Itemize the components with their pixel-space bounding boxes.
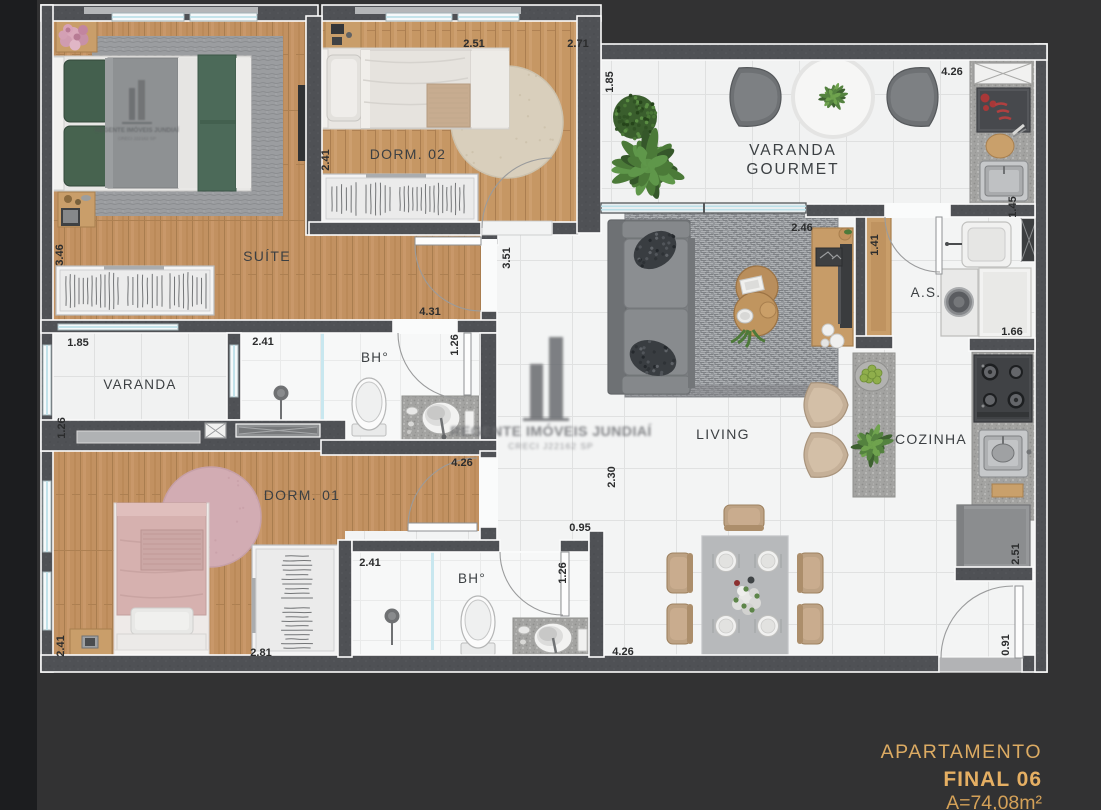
svg-text:0.91: 0.91 [1000, 634, 1012, 655]
svg-text:VARANDA: VARANDA [749, 142, 837, 159]
svg-text:1.45: 1.45 [1007, 196, 1019, 217]
svg-text:0.95: 0.95 [569, 522, 590, 534]
svg-text:CRECI J22162 SP: CRECI J22162 SP [118, 136, 156, 141]
svg-text:GOURMET: GOURMET [746, 161, 839, 178]
svg-text:1.26: 1.26 [449, 334, 461, 355]
svg-text:SUÍTE: SUÍTE [243, 248, 291, 264]
svg-text:2.41: 2.41 [359, 557, 380, 569]
svg-text:A.S.: A.S. [911, 285, 942, 300]
svg-text:2.51: 2.51 [463, 38, 484, 50]
svg-text:1.26: 1.26 [557, 562, 569, 583]
svg-text:4.26: 4.26 [612, 646, 633, 658]
svg-text:1.66: 1.66 [1001, 326, 1022, 338]
svg-text:BH°: BH° [361, 350, 389, 365]
svg-text:REGENTE IMÓVEIS JUNDIAÍ: REGENTE IMÓVEIS JUNDIAÍ [95, 126, 179, 134]
svg-text:APARTAMENTO: APARTAMENTO [881, 741, 1042, 763]
svg-text:1.85: 1.85 [604, 71, 616, 92]
svg-text:2.41: 2.41 [55, 635, 67, 656]
svg-text:COZINHA: COZINHA [895, 431, 967, 447]
svg-text:2.41: 2.41 [320, 149, 332, 170]
svg-text:LIVING: LIVING [696, 426, 750, 442]
svg-text:2.81: 2.81 [250, 647, 271, 659]
svg-text:DORM. 02: DORM. 02 [370, 146, 447, 162]
svg-text:BH°: BH° [458, 571, 486, 586]
svg-text:3.46: 3.46 [54, 244, 66, 265]
svg-text:2.51: 2.51 [1010, 543, 1022, 564]
svg-text:4.26: 4.26 [451, 457, 472, 469]
svg-text:A=74,08m²: A=74,08m² [946, 792, 1042, 810]
svg-text:FINAL 06: FINAL 06 [943, 768, 1042, 791]
svg-text:1.41: 1.41 [869, 234, 881, 255]
svg-text:DORM. 01: DORM. 01 [264, 487, 341, 503]
svg-text:4.26: 4.26 [941, 66, 962, 78]
svg-text:1.26: 1.26 [56, 417, 68, 438]
svg-text:4.31: 4.31 [419, 306, 440, 318]
svg-text:VARANDA: VARANDA [103, 377, 176, 392]
svg-text:2.41: 2.41 [252, 336, 273, 348]
svg-text:REGENTE IMÓVEIS JUNDIAÍ: REGENTE IMÓVEIS JUNDIAÍ [450, 422, 652, 440]
svg-text:2.71: 2.71 [567, 38, 588, 50]
svg-text:2.46: 2.46 [791, 222, 812, 234]
svg-text:1.85: 1.85 [67, 337, 88, 349]
svg-text:2.30: 2.30 [606, 466, 618, 487]
svg-text:3.51: 3.51 [501, 247, 513, 268]
svg-text:CRECI J22162 SP: CRECI J22162 SP [508, 441, 593, 451]
